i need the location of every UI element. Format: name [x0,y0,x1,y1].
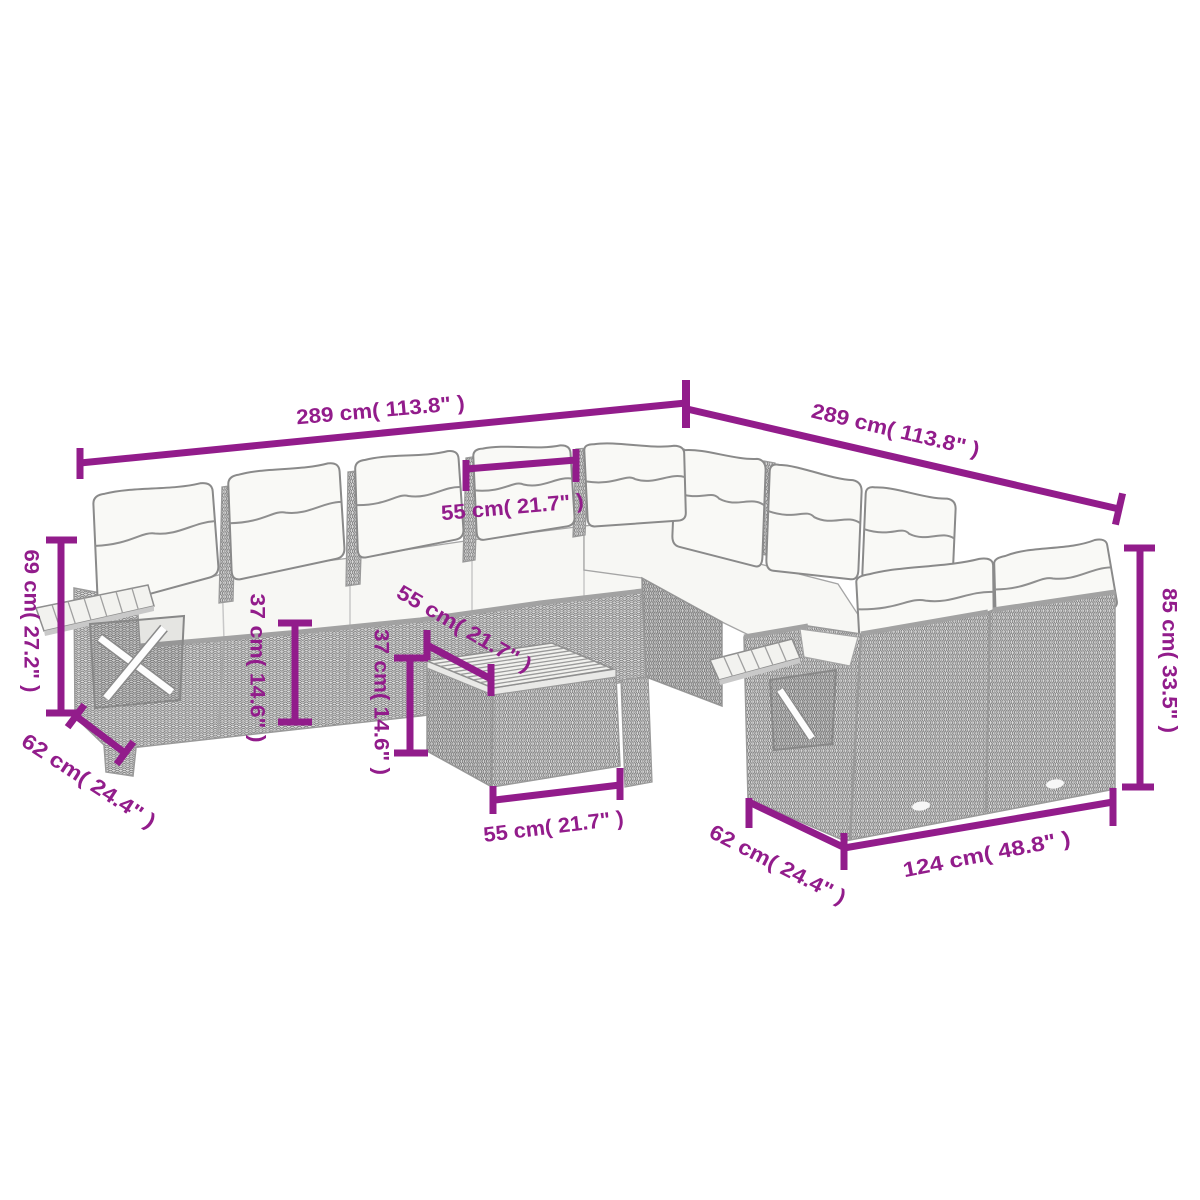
svg-text:69 cm( 27.2" ): 69 cm( 27.2" ) [20,550,43,693]
svg-text:37 cm( 14.6" ): 37 cm( 14.6" ) [370,629,393,775]
svg-text:37 cm( 14.6" ): 37 cm( 14.6" ) [246,594,269,743]
svg-text:85 cm( 33.5" ): 85 cm( 33.5" ) [1158,588,1181,733]
